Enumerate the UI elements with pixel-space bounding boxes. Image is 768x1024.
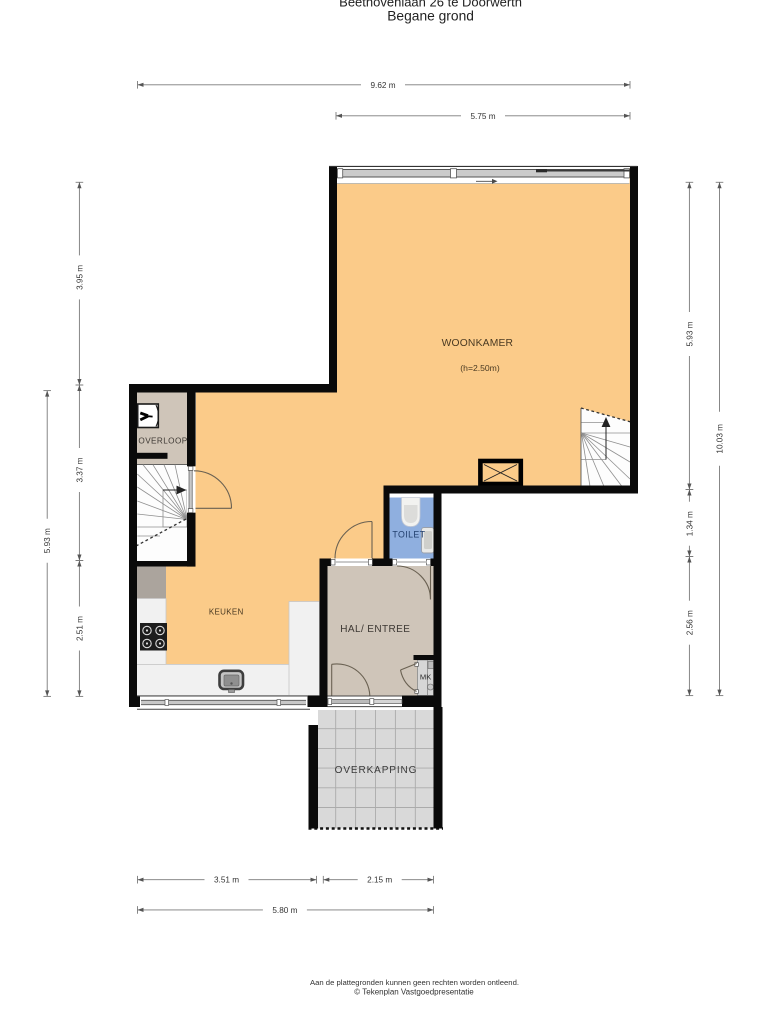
svg-text:2.56 m: 2.56 m [685,610,694,635]
svg-text:3.37 m: 3.37 m [75,457,84,482]
svg-text:OVERKAPPING: OVERKAPPING [335,765,418,776]
svg-text:9.62 m: 9.62 m [370,81,395,90]
svg-text:3.95 m: 3.95 m [75,265,84,290]
svg-text:KEUKEN: KEUKEN [209,608,244,617]
svg-text:HAL/ ENTREE: HAL/ ENTREE [340,624,410,635]
svg-text:5.93 m: 5.93 m [43,528,52,553]
svg-text:© Tekenplan Vastgoedpresentati: © Tekenplan Vastgoedpresentatie [354,988,474,997]
svg-text:WOONKAMER: WOONKAMER [442,338,514,349]
svg-text:5.80 m: 5.80 m [272,906,297,915]
svg-text:MK: MK [420,673,431,682]
svg-text:10.03 m: 10.03 m [716,424,725,454]
svg-text:3.51 m: 3.51 m [214,876,239,885]
svg-text:5.93 m: 5.93 m [685,321,694,346]
svg-text:Begane grond: Begane grond [387,9,474,24]
svg-text:TOILET: TOILET [392,530,425,540]
svg-text:5.75 m: 5.75 m [470,112,495,121]
svg-text:(h=2.50m): (h=2.50m) [460,363,500,373]
svg-text:OVERLOOP: OVERLOOP [138,437,187,446]
svg-text:2.51 m: 2.51 m [75,616,84,641]
svg-text:1.34 m: 1.34 m [685,511,694,536]
svg-text:Aan de plattegronden kunnen ge: Aan de plattegronden kunnen geen rechten… [310,978,519,987]
svg-text:2.15 m: 2.15 m [367,876,392,885]
